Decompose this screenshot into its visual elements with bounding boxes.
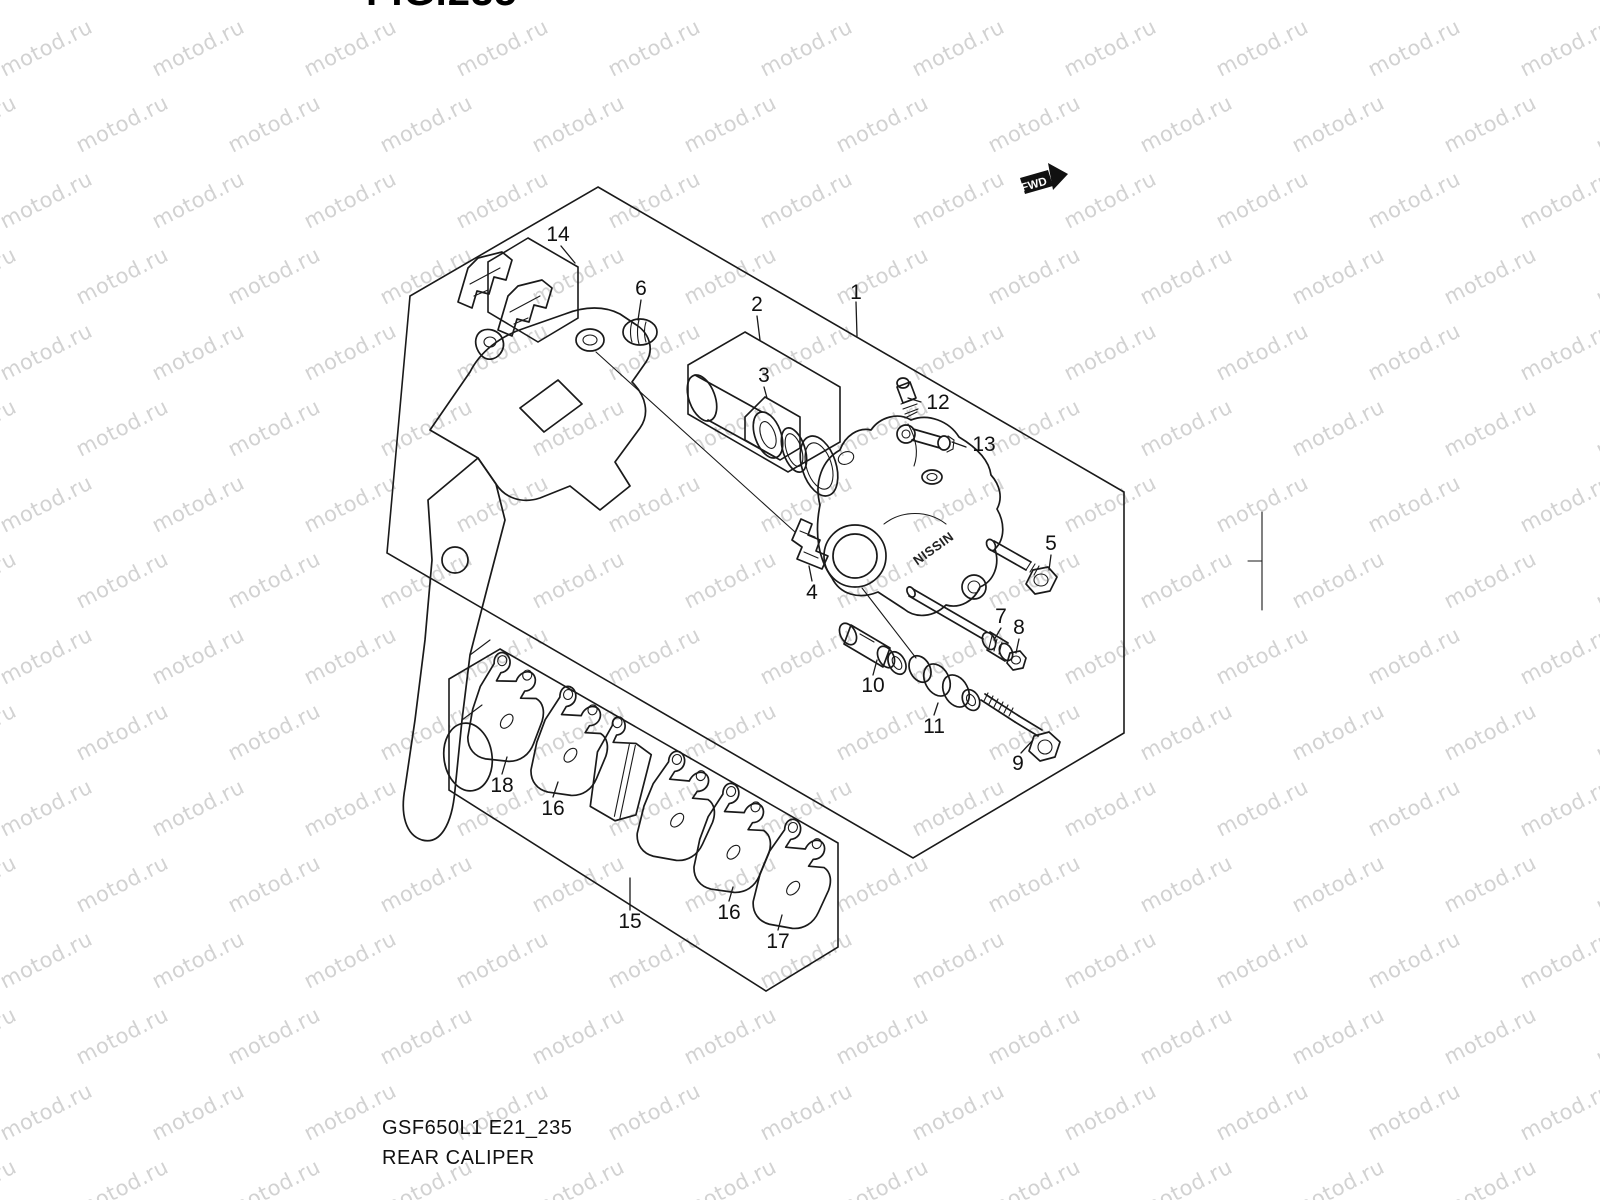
callout-15: 15 [618,910,641,933]
callout-7: 7 [995,605,1007,628]
callout-12: 12 [926,391,949,414]
callout-18: 18 [490,774,513,797]
brake-pad-drawing-17 [745,815,847,940]
callout-17: 17 [766,930,789,953]
brake-pad-drawing-16b [686,779,786,903]
figure-title: FIG.235 [366,0,518,15]
callout-8: 8 [1013,616,1025,639]
fwd-direction-marker: FWD [1020,163,1068,194]
brake-pad-set-drawing [461,649,848,940]
brake-pad-edge-drawing [579,714,663,826]
callout-9: 9 [1012,752,1024,775]
callout-6: 6 [635,277,647,300]
callout-3: 3 [758,364,770,387]
callout-16b: 16 [717,901,740,924]
boot-plug-drawing [623,319,657,345]
callout-13: 13 [972,433,995,456]
callout-2: 2 [751,293,763,316]
dust-seal-drawing [793,431,844,500]
callout-leaders [502,246,1051,930]
figure-name: REAR CALIPER [382,1147,572,1170]
callout-14: 14 [546,223,570,246]
exploded-diagram: NISSIN [0,0,1600,1200]
callout-16a: 16 [541,797,564,820]
caliper-brand-text: NISSIN [910,529,956,568]
retainer-group-box [488,238,578,342]
mounting-bolt-drawing [981,693,1060,761]
callout-4: 4 [806,581,818,604]
registration-mark [1248,512,1262,610]
callout-11: 11 [923,715,945,738]
callout-numbers: 1 2 3 4 5 6 7 8 9 10 11 12 13 14 15 16 1… [490,223,1057,953]
union-bolt-drawing [897,425,954,452]
piston-drawing [682,371,789,462]
caliper-bracket-drawing [403,308,650,841]
callout-5: 5 [1045,532,1057,555]
brake-pad-drawing [629,747,731,872]
bellows-boot-drawing [905,652,984,714]
footer-block: GSF650L1 E21_235 REAR CALIPER [382,1117,572,1170]
callout-1: 1 [850,281,862,304]
model-code: GSF650L1 E21_235 [382,1117,572,1140]
catalog-page: motod.rumotod.rumotod.rumotod.rumotod.ru… [0,0,1600,1200]
callout-10: 10 [861,674,884,697]
pin-boot-drawing [836,620,910,677]
